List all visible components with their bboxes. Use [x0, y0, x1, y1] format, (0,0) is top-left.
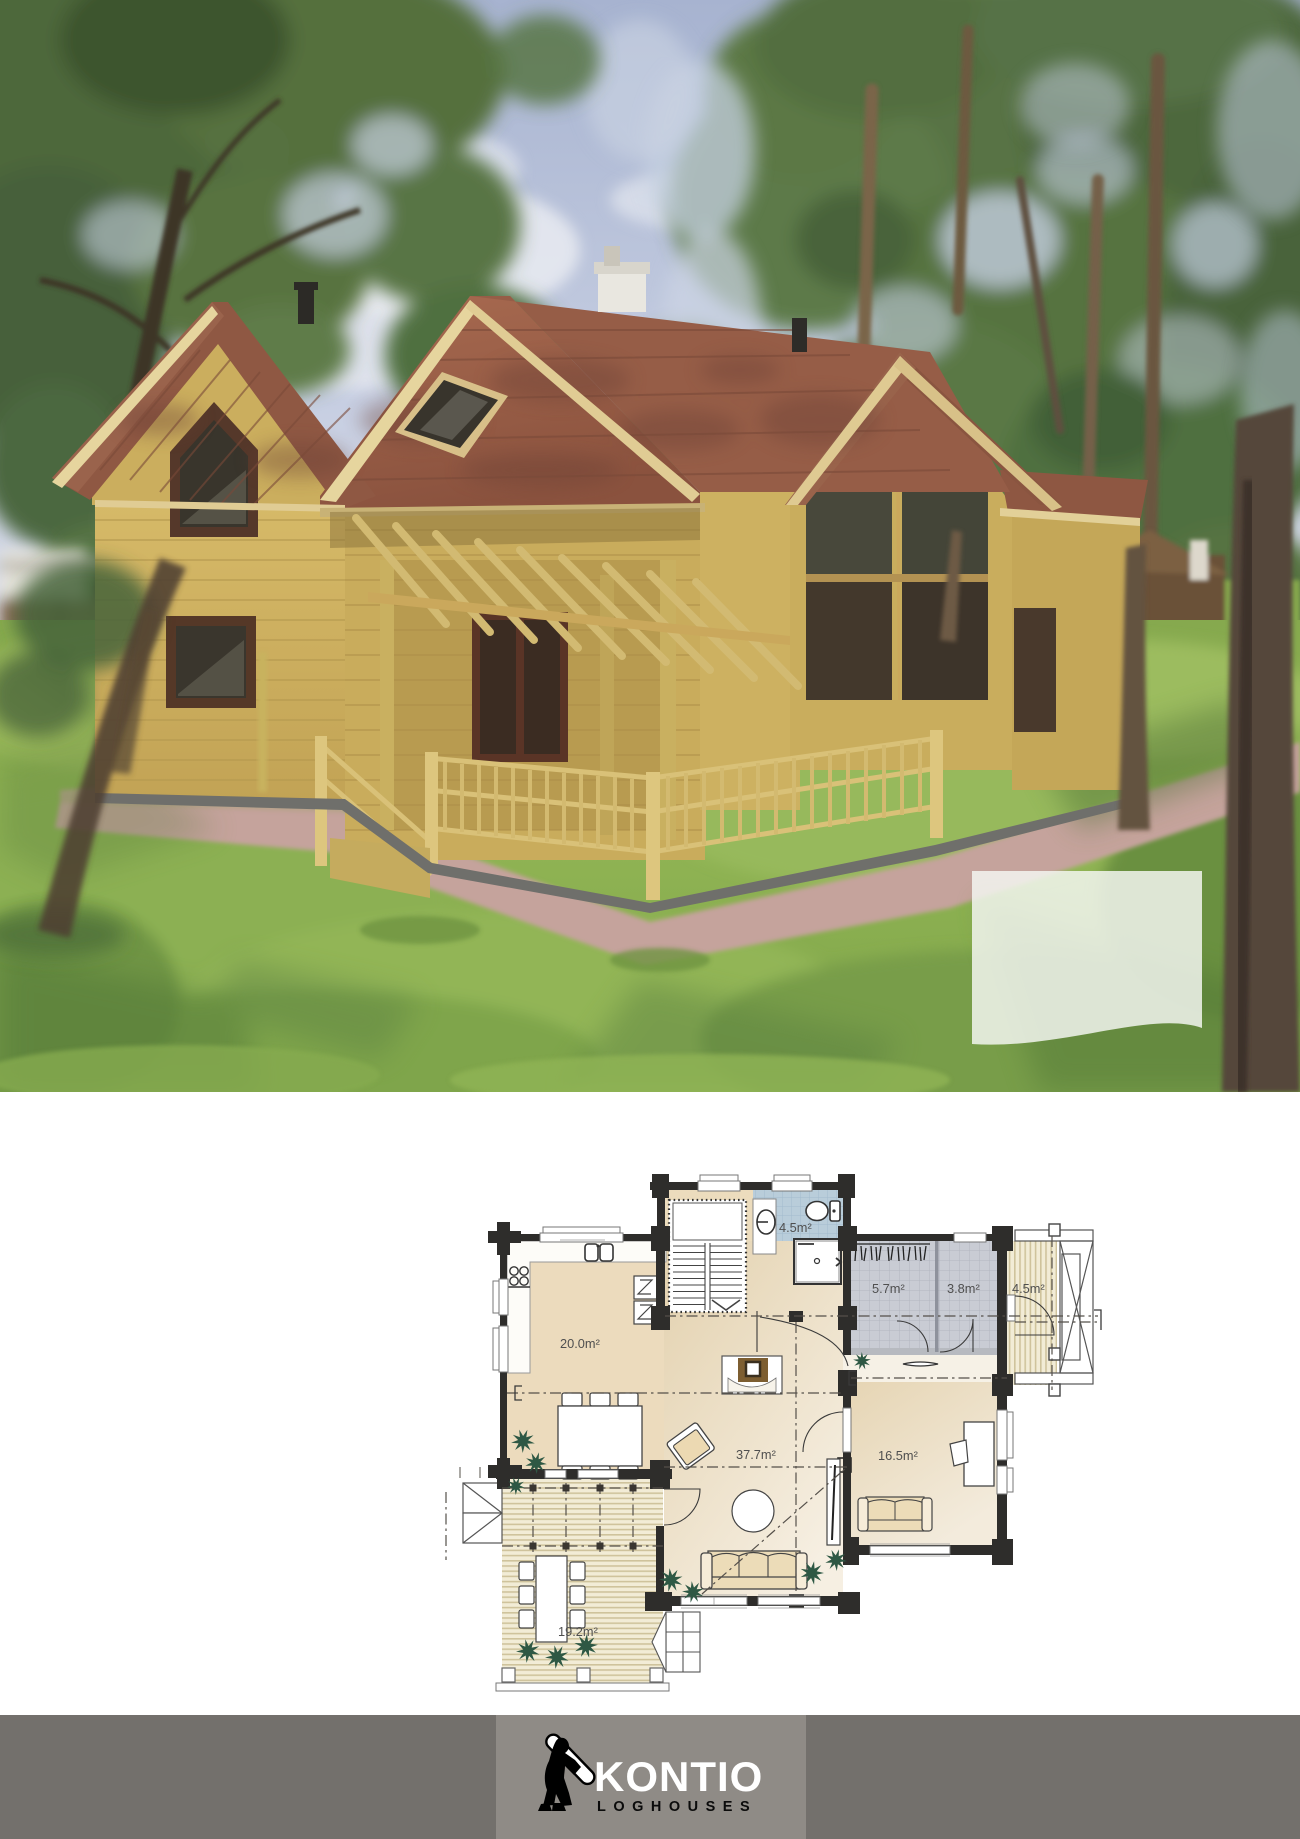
- svg-text:19.2m²: 19.2m²: [558, 1624, 599, 1639]
- svg-text:37.7m²: 37.7m²: [736, 1447, 777, 1462]
- svg-text:4.5m²: 4.5m²: [779, 1220, 812, 1235]
- svg-text:20.0m²: 20.0m²: [560, 1336, 601, 1351]
- svg-text:16.5m²: 16.5m²: [878, 1448, 919, 1463]
- svg-text:4.5m²: 4.5m²: [1012, 1281, 1045, 1296]
- svg-text:3.8m²: 3.8m²: [947, 1281, 980, 1296]
- svg-text:5.7m²: 5.7m²: [872, 1281, 905, 1296]
